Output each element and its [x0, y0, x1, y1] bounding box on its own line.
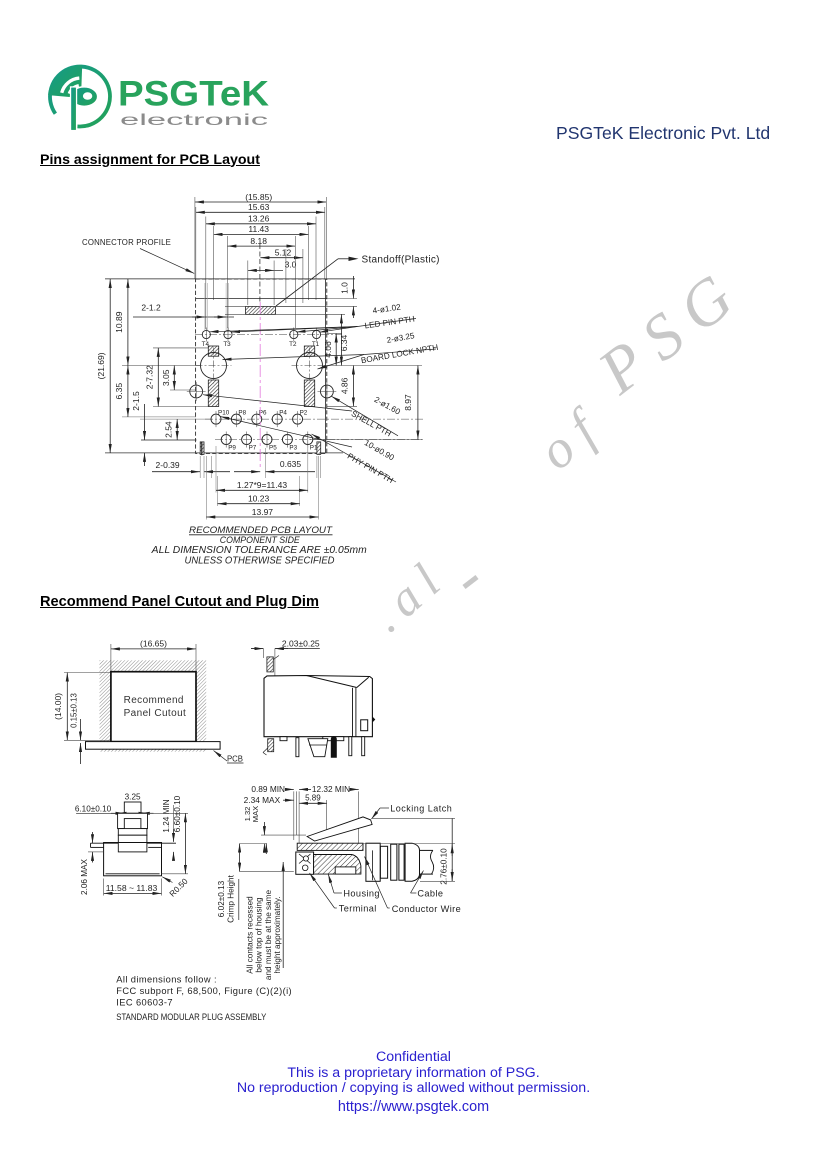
- svg-text:Standoff(Plastic): Standoff(Plastic): [362, 255, 440, 266]
- svg-text:P9: P9: [228, 445, 236, 452]
- svg-text:10.89: 10.89: [114, 311, 124, 333]
- svg-text:8.18: 8.18: [250, 236, 267, 246]
- svg-text:CONNECTOR PROFILE: CONNECTOR PROFILE: [82, 238, 171, 247]
- svg-text:P4: P4: [279, 410, 287, 417]
- svg-text:10.23: 10.23: [248, 494, 270, 504]
- svg-text:Locking Latch: Locking Latch: [390, 803, 452, 813]
- svg-text:All dimensions follow :: All dimensions follow :: [116, 975, 217, 985]
- svg-text:13.97: 13.97: [252, 507, 274, 517]
- svg-text:LED PIN PTH: LED PIN PTH: [364, 315, 415, 331]
- svg-text:2-ø1.60: 2-ø1.60: [373, 395, 402, 417]
- svg-text:height approximately.: height approximately.: [273, 896, 282, 973]
- svg-text:2.76±0.10: 2.76±0.10: [440, 848, 449, 885]
- svg-text:6.35: 6.35: [114, 383, 124, 400]
- svg-text:MAX: MAX: [251, 806, 260, 822]
- svg-text:P5: P5: [269, 445, 277, 452]
- svg-text:P10: P10: [218, 410, 230, 417]
- svg-text:(21.69): (21.69): [96, 352, 106, 379]
- svg-text:P2: P2: [300, 410, 308, 417]
- svg-text:11.58 ~ 11.83: 11.58 ~ 11.83: [106, 883, 158, 893]
- svg-text:3.05: 3.05: [161, 369, 171, 386]
- svg-text:and must be at the same: and must be at the same: [264, 890, 273, 981]
- svg-text:2-0.39: 2-0.39: [156, 460, 180, 470]
- svg-text:T2: T2: [289, 341, 297, 348]
- svg-text:15.63: 15.63: [248, 202, 270, 212]
- svg-text:2.03±0.25: 2.03±0.25: [282, 639, 320, 649]
- svg-text:Panel Cutout: Panel Cutout: [124, 708, 187, 719]
- svg-text:13.26: 13.26: [248, 214, 270, 224]
- svg-text:2.34 MAX: 2.34 MAX: [244, 795, 281, 805]
- svg-text:6.02±0.13: 6.02±0.13: [217, 880, 226, 917]
- svg-text:1.27*9=11.43: 1.27*9=11.43: [237, 480, 287, 490]
- svg-text:0.635: 0.635: [280, 459, 302, 469]
- svg-text:5.12: 5.12: [275, 248, 292, 258]
- svg-text:1.0: 1.0: [340, 282, 350, 294]
- svg-text:(15.85): (15.85): [245, 192, 272, 202]
- svg-text:2.06 MAX: 2.06 MAX: [80, 858, 89, 894]
- svg-text:PCB: PCB: [227, 755, 243, 764]
- svg-text:Terminal: Terminal: [339, 904, 377, 914]
- svg-text:SHELL PTH: SHELL PTH: [350, 409, 393, 438]
- svg-text:T3: T3: [223, 341, 231, 348]
- svg-text:6.60±0.10: 6.60±0.10: [173, 795, 182, 832]
- svg-text:5.89: 5.89: [305, 794, 321, 803]
- svg-text:6.10±0.10: 6.10±0.10: [75, 804, 112, 813]
- svg-text:(14.00): (14.00): [53, 693, 63, 720]
- svg-text:(16.65): (16.65): [140, 639, 167, 649]
- svg-text:0.89 MIN: 0.89 MIN: [251, 784, 285, 794]
- svg-text:Conductor Wire: Conductor Wire: [392, 904, 461, 914]
- svg-text:3.0: 3.0: [285, 260, 297, 270]
- svg-text:COMPONENT SIDE: COMPONENT SIDE: [220, 535, 301, 546]
- svg-text:2-1.5: 2-1.5: [131, 391, 141, 411]
- svg-text:1.24 MIN: 1.24 MIN: [162, 799, 171, 832]
- svg-text:2-ø3.25: 2-ø3.25: [386, 331, 416, 345]
- svg-text:below top of housing: below top of housing: [255, 897, 264, 973]
- svg-text:STANDARD MODULAR PLUG ASSEMBLY: STANDARD MODULAR PLUG ASSEMBLY: [116, 1012, 266, 1022]
- svg-text:4.06: 4.06: [323, 341, 333, 358]
- svg-text:UNLESS OTHERWISE SPECIFIED: UNLESS OTHERWISE SPECIFIED: [185, 555, 335, 566]
- svg-text:Recommend: Recommend: [124, 695, 184, 706]
- svg-text:2-7.32: 2-7.32: [145, 365, 155, 389]
- svg-text:P3: P3: [289, 445, 297, 452]
- svg-text:4-ø1.02: 4-ø1.02: [372, 303, 402, 316]
- svg-text:6.34: 6.34: [339, 334, 349, 351]
- svg-text:Housing: Housing: [343, 889, 380, 899]
- svg-text:Crimp Height: Crimp Height: [227, 874, 236, 922]
- svg-text:All contacts recessed: All contacts recessed: [245, 896, 254, 974]
- svg-text:0.15±0.13: 0.15±0.13: [70, 693, 79, 728]
- svg-text:2.54: 2.54: [164, 421, 174, 438]
- svg-text:11.43: 11.43: [248, 224, 269, 234]
- svg-text:P1: P1: [310, 445, 318, 452]
- svg-text:2-1.2: 2-1.2: [141, 303, 161, 313]
- svg-text:IEC 60603-7: IEC 60603-7: [116, 998, 173, 1008]
- svg-text:10-ø0.90: 10-ø0.90: [363, 438, 396, 462]
- svg-text:3.25: 3.25: [125, 793, 141, 802]
- svg-text:T1: T1: [312, 341, 320, 348]
- svg-text:Cable: Cable: [417, 889, 443, 899]
- svg-text:FCC subport F, 68,500, Figure: FCC subport F, 68,500, Figure (C)(2)(i): [116, 986, 292, 996]
- svg-text:R0.50: R0.50: [168, 877, 190, 899]
- svg-text:4.86: 4.86: [340, 377, 350, 394]
- svg-text:8.97: 8.97: [403, 394, 413, 411]
- svg-text:P8: P8: [238, 410, 246, 417]
- svg-text:T4: T4: [202, 341, 210, 348]
- svg-text:P7: P7: [249, 445, 257, 452]
